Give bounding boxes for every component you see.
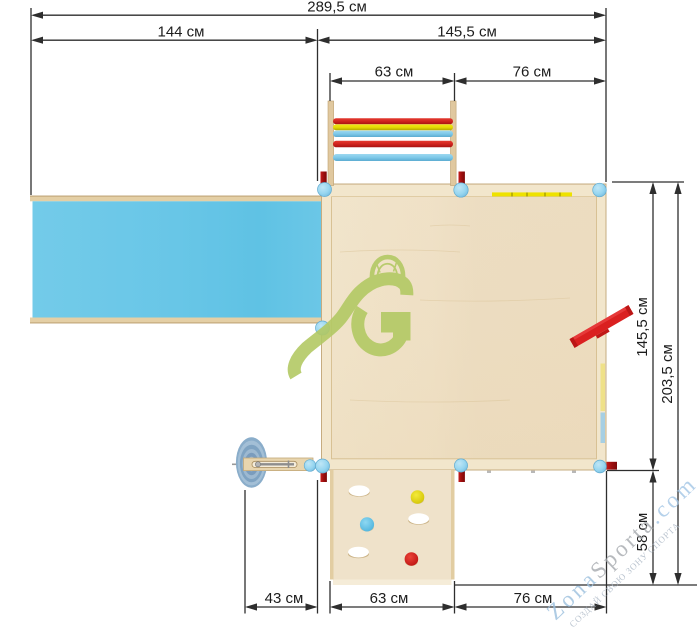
svg-text:289,5 см: 289,5 см — [307, 0, 367, 16]
svg-text:145,5 см: 145,5 см — [634, 297, 651, 357]
svg-text:43 см: 43 см — [265, 590, 304, 607]
svg-text:63 см: 63 см — [375, 64, 414, 81]
svg-text:203,5 см: 203,5 см — [659, 344, 676, 404]
svg-text:76 см: 76 см — [513, 64, 552, 81]
svg-text:145,5 см: 145,5 см — [437, 24, 497, 41]
svg-text:63 см: 63 см — [370, 590, 409, 607]
svg-text:144 см: 144 см — [157, 24, 204, 41]
